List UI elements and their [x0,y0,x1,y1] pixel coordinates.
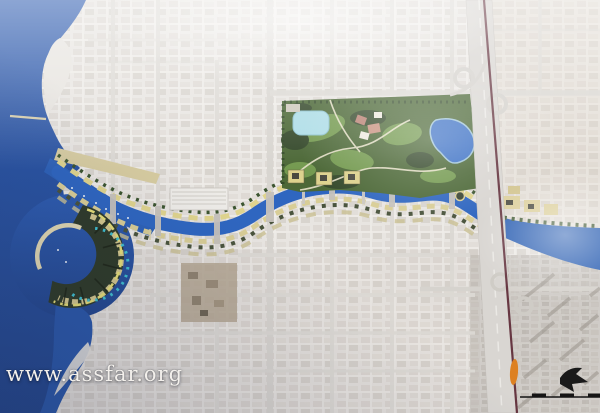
central-park [281,94,480,198]
courtyard-buildings [288,170,360,185]
master-plan-map [0,0,600,413]
master-plan-photo: www.assfar.org [0,0,600,413]
watermark: www.assfar.org [6,362,183,386]
district-details [181,263,237,322]
scale-bar [520,394,600,398]
